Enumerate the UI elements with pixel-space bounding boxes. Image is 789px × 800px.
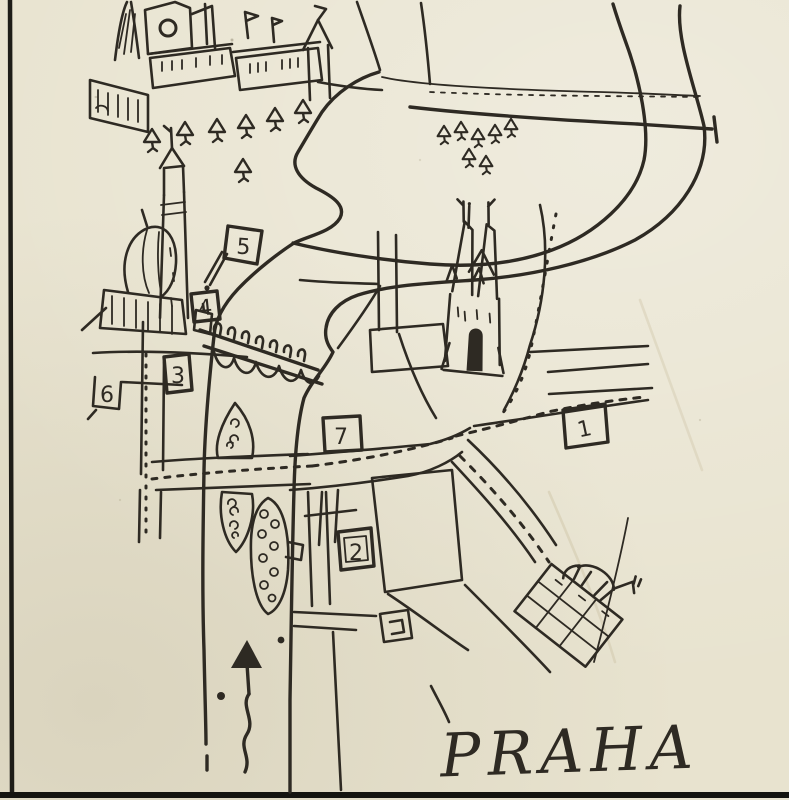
map-sketch: 5 4 3	[0, 0, 789, 800]
north-arrow-icon	[217, 637, 284, 772]
map-title: PRAHA	[438, 712, 701, 791]
forest-trees-right	[438, 119, 518, 174]
marker-2: 2	[338, 528, 374, 570]
marker-flag-5: 5	[204, 226, 262, 291]
marker-3: 3	[164, 354, 192, 393]
marker-7: 7	[323, 416, 362, 452]
marker-label: 1	[575, 416, 594, 443]
marker-label: 5	[236, 235, 252, 261]
marker-label: 2	[349, 541, 363, 566]
gothic-cathedral-icon	[441, 198, 509, 376]
marker-1: 1	[563, 404, 608, 448]
scanned-map-page: 5 4 3	[0, 0, 789, 800]
street-end-stroke	[431, 686, 449, 722]
page-border-left	[10, 0, 12, 792]
equestrian-statue-and-museum-icon	[515, 530, 649, 667]
marker-6: 6	[88, 377, 121, 419]
forest-trees-left	[144, 100, 311, 182]
church-tower-and-dome-icon	[82, 126, 188, 334]
marker-label: 6	[100, 383, 114, 408]
river-island-icon	[217, 403, 303, 614]
marker-label: 7	[334, 425, 348, 450]
